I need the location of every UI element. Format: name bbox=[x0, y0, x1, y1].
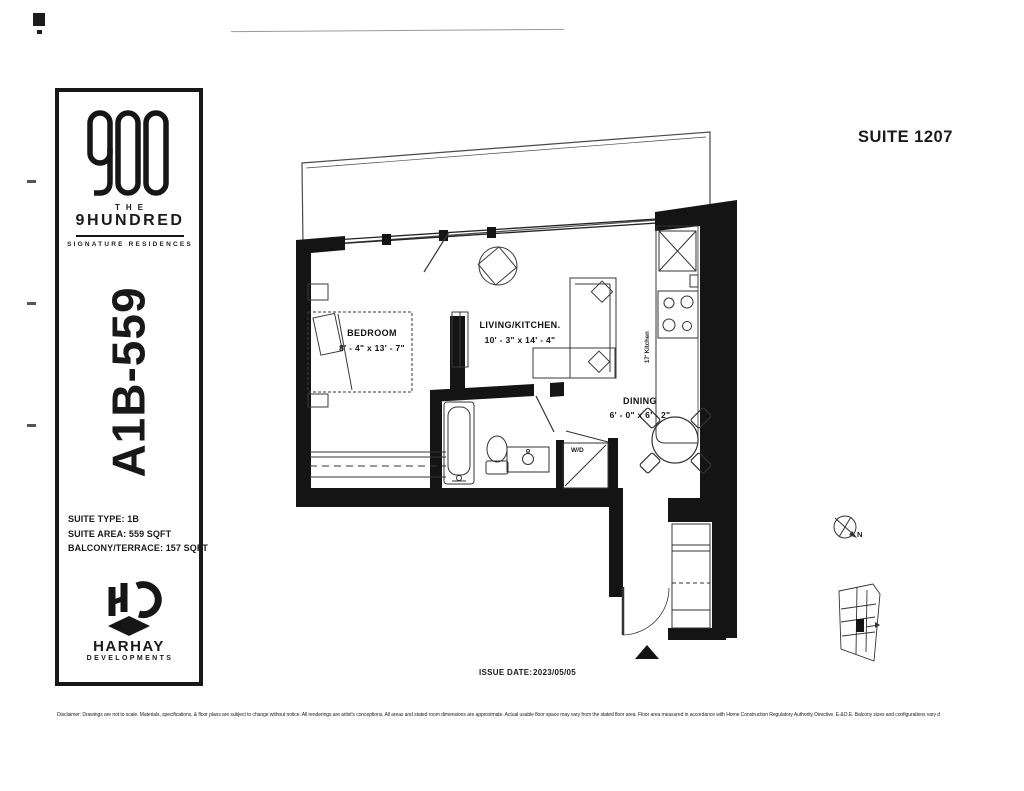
kitchen-length-label: 17' Kitchen bbox=[645, 331, 651, 363]
laundry-closet bbox=[563, 431, 608, 488]
entry-closet bbox=[672, 524, 710, 628]
issue-date-label: ISSUE DATE: bbox=[479, 668, 532, 677]
dining-label: DINING bbox=[595, 396, 685, 406]
bedroom-closet bbox=[310, 452, 446, 477]
kitchen-sink bbox=[659, 231, 696, 271]
laundry-label: W/D bbox=[571, 447, 584, 454]
living-kitchen-label: LIVING/KITCHEN. bbox=[460, 320, 580, 330]
floorplan-page: SUITE 1207 THE 9HUNDRED SIGNATURE RESIDE… bbox=[0, 0, 1024, 791]
compass-icon bbox=[834, 516, 857, 538]
dining-dims: 6' - 0" x 6' - 2" bbox=[595, 410, 685, 420]
compass-north-label: N bbox=[857, 530, 862, 539]
entry-marker-triangle bbox=[635, 645, 659, 659]
bedroom-dims: 8' - 4" x 13' - 7" bbox=[312, 343, 432, 353]
entry-door bbox=[623, 587, 669, 635]
disclaimer-text: Disclaimer: Drawings are not to scale. M… bbox=[57, 712, 940, 718]
bedroom-label: BEDROOM bbox=[312, 328, 432, 338]
kitchen-stove bbox=[658, 291, 698, 338]
issue-date-value: 2023/05/05 bbox=[533, 668, 576, 677]
living-kitchen-dims: 10' - 3" x 14' - 4" bbox=[460, 335, 580, 345]
toilet bbox=[486, 436, 508, 474]
keyplan bbox=[839, 584, 880, 661]
bathroom-vanity bbox=[507, 447, 549, 472]
bathroom-door bbox=[536, 396, 554, 432]
armchair bbox=[478, 247, 517, 285]
bathtub bbox=[444, 402, 474, 484]
